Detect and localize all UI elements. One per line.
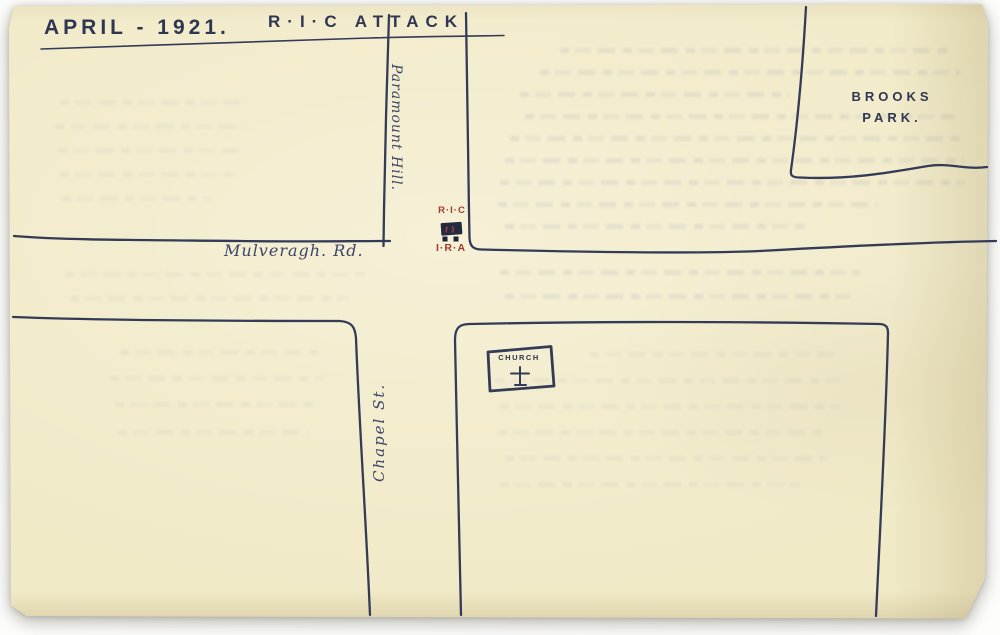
chapel-street-label: Chapel St. [370,383,388,482]
ric-building-marker [441,222,463,236]
mulveragh-road-label: Mulveragh. Rd. [224,241,364,260]
scanned-map-photo: APRIL - 1921. R·I·C ATTACK BROOKS PARK. … [0,0,1000,635]
map-title-date: APRIL - 1921. [44,16,230,40]
road-line-mulveragh-south-and-chapel-west [13,317,370,615]
ira-position-dots [443,237,459,242]
map-title-event: R·I·C ATTACK [268,12,464,32]
ric-marker-label: R·I·C [431,205,473,216]
brooks-park-label: BROOKS PARK. [822,86,962,128]
church-label: CHURCH [492,353,546,362]
paramount-hill-label: Paramount Hill. [388,64,404,191]
church-cross-icon [511,367,529,385]
ira-marker-label: I·R·A [428,242,474,254]
brooks-park-label-line2: PARK. [822,107,962,128]
road-line-paramount-east-and-mulveragh-east [466,13,996,253]
brooks-park-label-line1: BROOKS [822,86,962,107]
